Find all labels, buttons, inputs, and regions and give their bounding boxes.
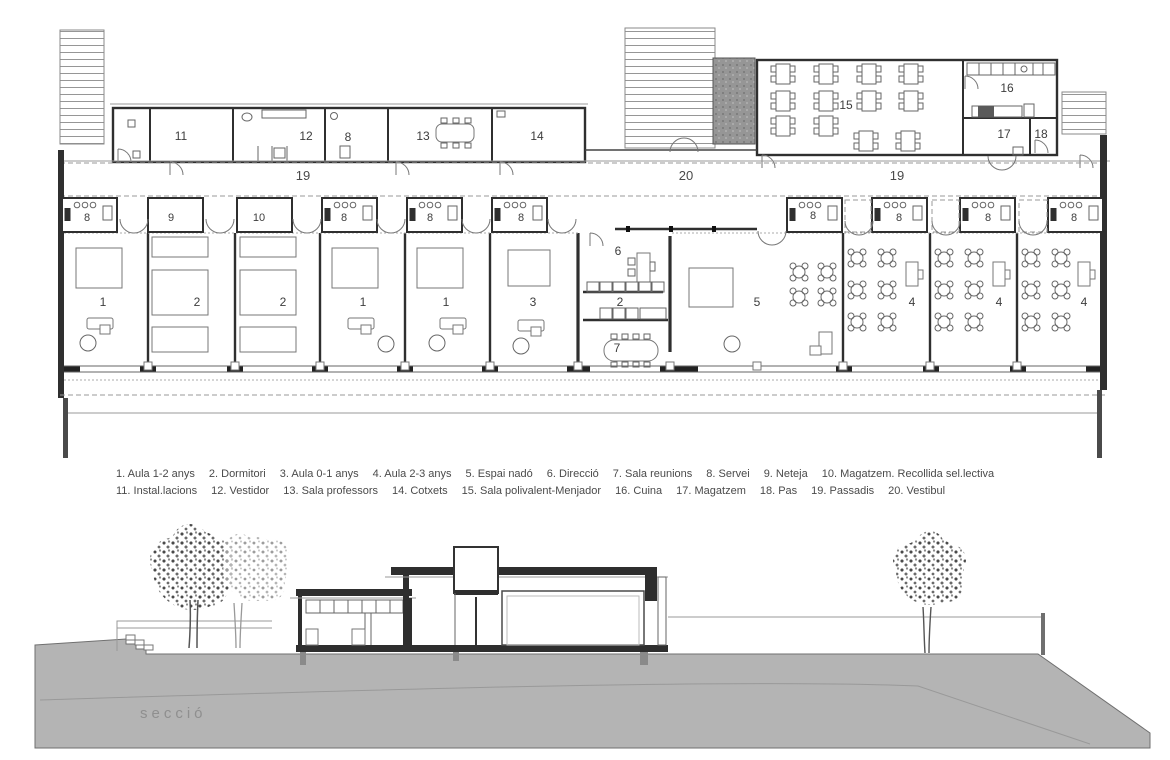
legend-item: 3. Aula 0-1 anys [280,466,359,483]
room-label: 8 [84,212,90,224]
room-label: 9 [168,212,174,224]
building-section [290,547,668,665]
legend-item: 16. Cuina [615,483,662,500]
legend-item: 7. Sala reunions [613,466,693,483]
room-label: 2 [280,295,287,309]
legend-item: 6. Direcció [547,466,599,483]
fence-left [117,621,272,651]
classroom-furniture [76,237,1095,367]
room-label: 4 [996,295,1003,309]
room-label: 8 [1071,212,1077,224]
room-label: 8 [810,210,816,222]
room-label: 18 [1034,127,1048,141]
legend: 1. Aula 1-2 anys2. Dormitori3. Aula 0-1 … [116,466,1076,500]
room-label: 1 [360,295,367,309]
room-label: 1 [443,295,450,309]
room-label: 15 [839,98,853,112]
legend-item: 11. Instal.lacions [116,483,197,500]
room-label: 2 [194,295,201,309]
room-label: 3 [530,295,537,309]
stair-hatch-right [1062,92,1106,134]
tree-right [893,531,966,653]
room-label: 8 [896,212,902,224]
room-label: 4 [1081,295,1088,309]
legend-item: 13. Sala professors [283,483,378,500]
room-label: 12 [299,129,313,143]
stair-hatch-top-left [60,30,104,144]
south-facade [64,362,1100,372]
legend-item: 17. Magatzem [676,483,746,500]
entry-porch-paving [713,58,755,144]
room-label: 16 [1000,81,1014,95]
legend-item: 4. Aula 2-3 anys [373,466,452,483]
floor-plan-drawing: 1112813141516171812211362754448910888888… [0,0,1170,760]
room-label: 1 [100,295,107,309]
room-label: 19 [296,168,310,183]
legend-item: 1. Aula 1-2 anys [116,466,195,483]
legend-item: 10. Magatzem. Recollida sel.lectiva [822,466,994,483]
legend-item: 18. Pas [760,483,797,500]
architectural-sheet: 1112813141516171812211362754448910888888… [0,0,1170,760]
room-label: 8 [341,212,347,224]
room-label: 14 [530,129,544,143]
room-label: 19 [890,168,904,183]
tree-left-light [223,534,289,648]
legend-item: 5. Espai nadó [466,466,533,483]
room-label: 20 [679,168,693,183]
legend-item: 12. Vestidor [211,483,269,500]
legend-item: 14. Cotxets [392,483,448,500]
room-label: 10 [253,212,265,224]
room-label: 8 [427,212,433,224]
room-label: 6 [615,244,622,258]
room-label: 4 [909,295,916,309]
room-label: 5 [754,295,761,309]
legend-item: 8. Servei [706,466,749,483]
legend-item: 2. Dormitori [209,466,266,483]
room-label: 13 [416,129,430,143]
fence-right [668,613,1045,655]
terrace-lines [60,380,1105,458]
ramp-hatch-center [625,28,715,148]
section-label: secció [140,705,207,722]
section-drawing: secció [35,524,1150,748]
room-label: 8 [345,130,352,144]
legend-row-2: 11. Instal.lacions12. Vestidor13. Sala p… [116,483,1076,500]
room-label: 8 [985,212,991,224]
legend-item: 19. Passadis [811,483,874,500]
room-label: 17 [997,127,1011,141]
legend-item: 9. Neteja [764,466,808,483]
legend-row-1: 1. Aula 1-2 anys2. Dormitori3. Aula 0-1 … [116,466,1076,483]
tree-left-dark [150,524,234,648]
legend-item: 15. Sala polivalent-Menjador [462,483,601,500]
multipurpose-wing [757,60,1093,168]
room-label: 7 [614,341,621,355]
legend-item: 20. Vestibul [888,483,945,500]
room-label: 2 [617,295,624,309]
room-label: 8 [518,212,524,224]
room-label: 11 [175,129,188,143]
